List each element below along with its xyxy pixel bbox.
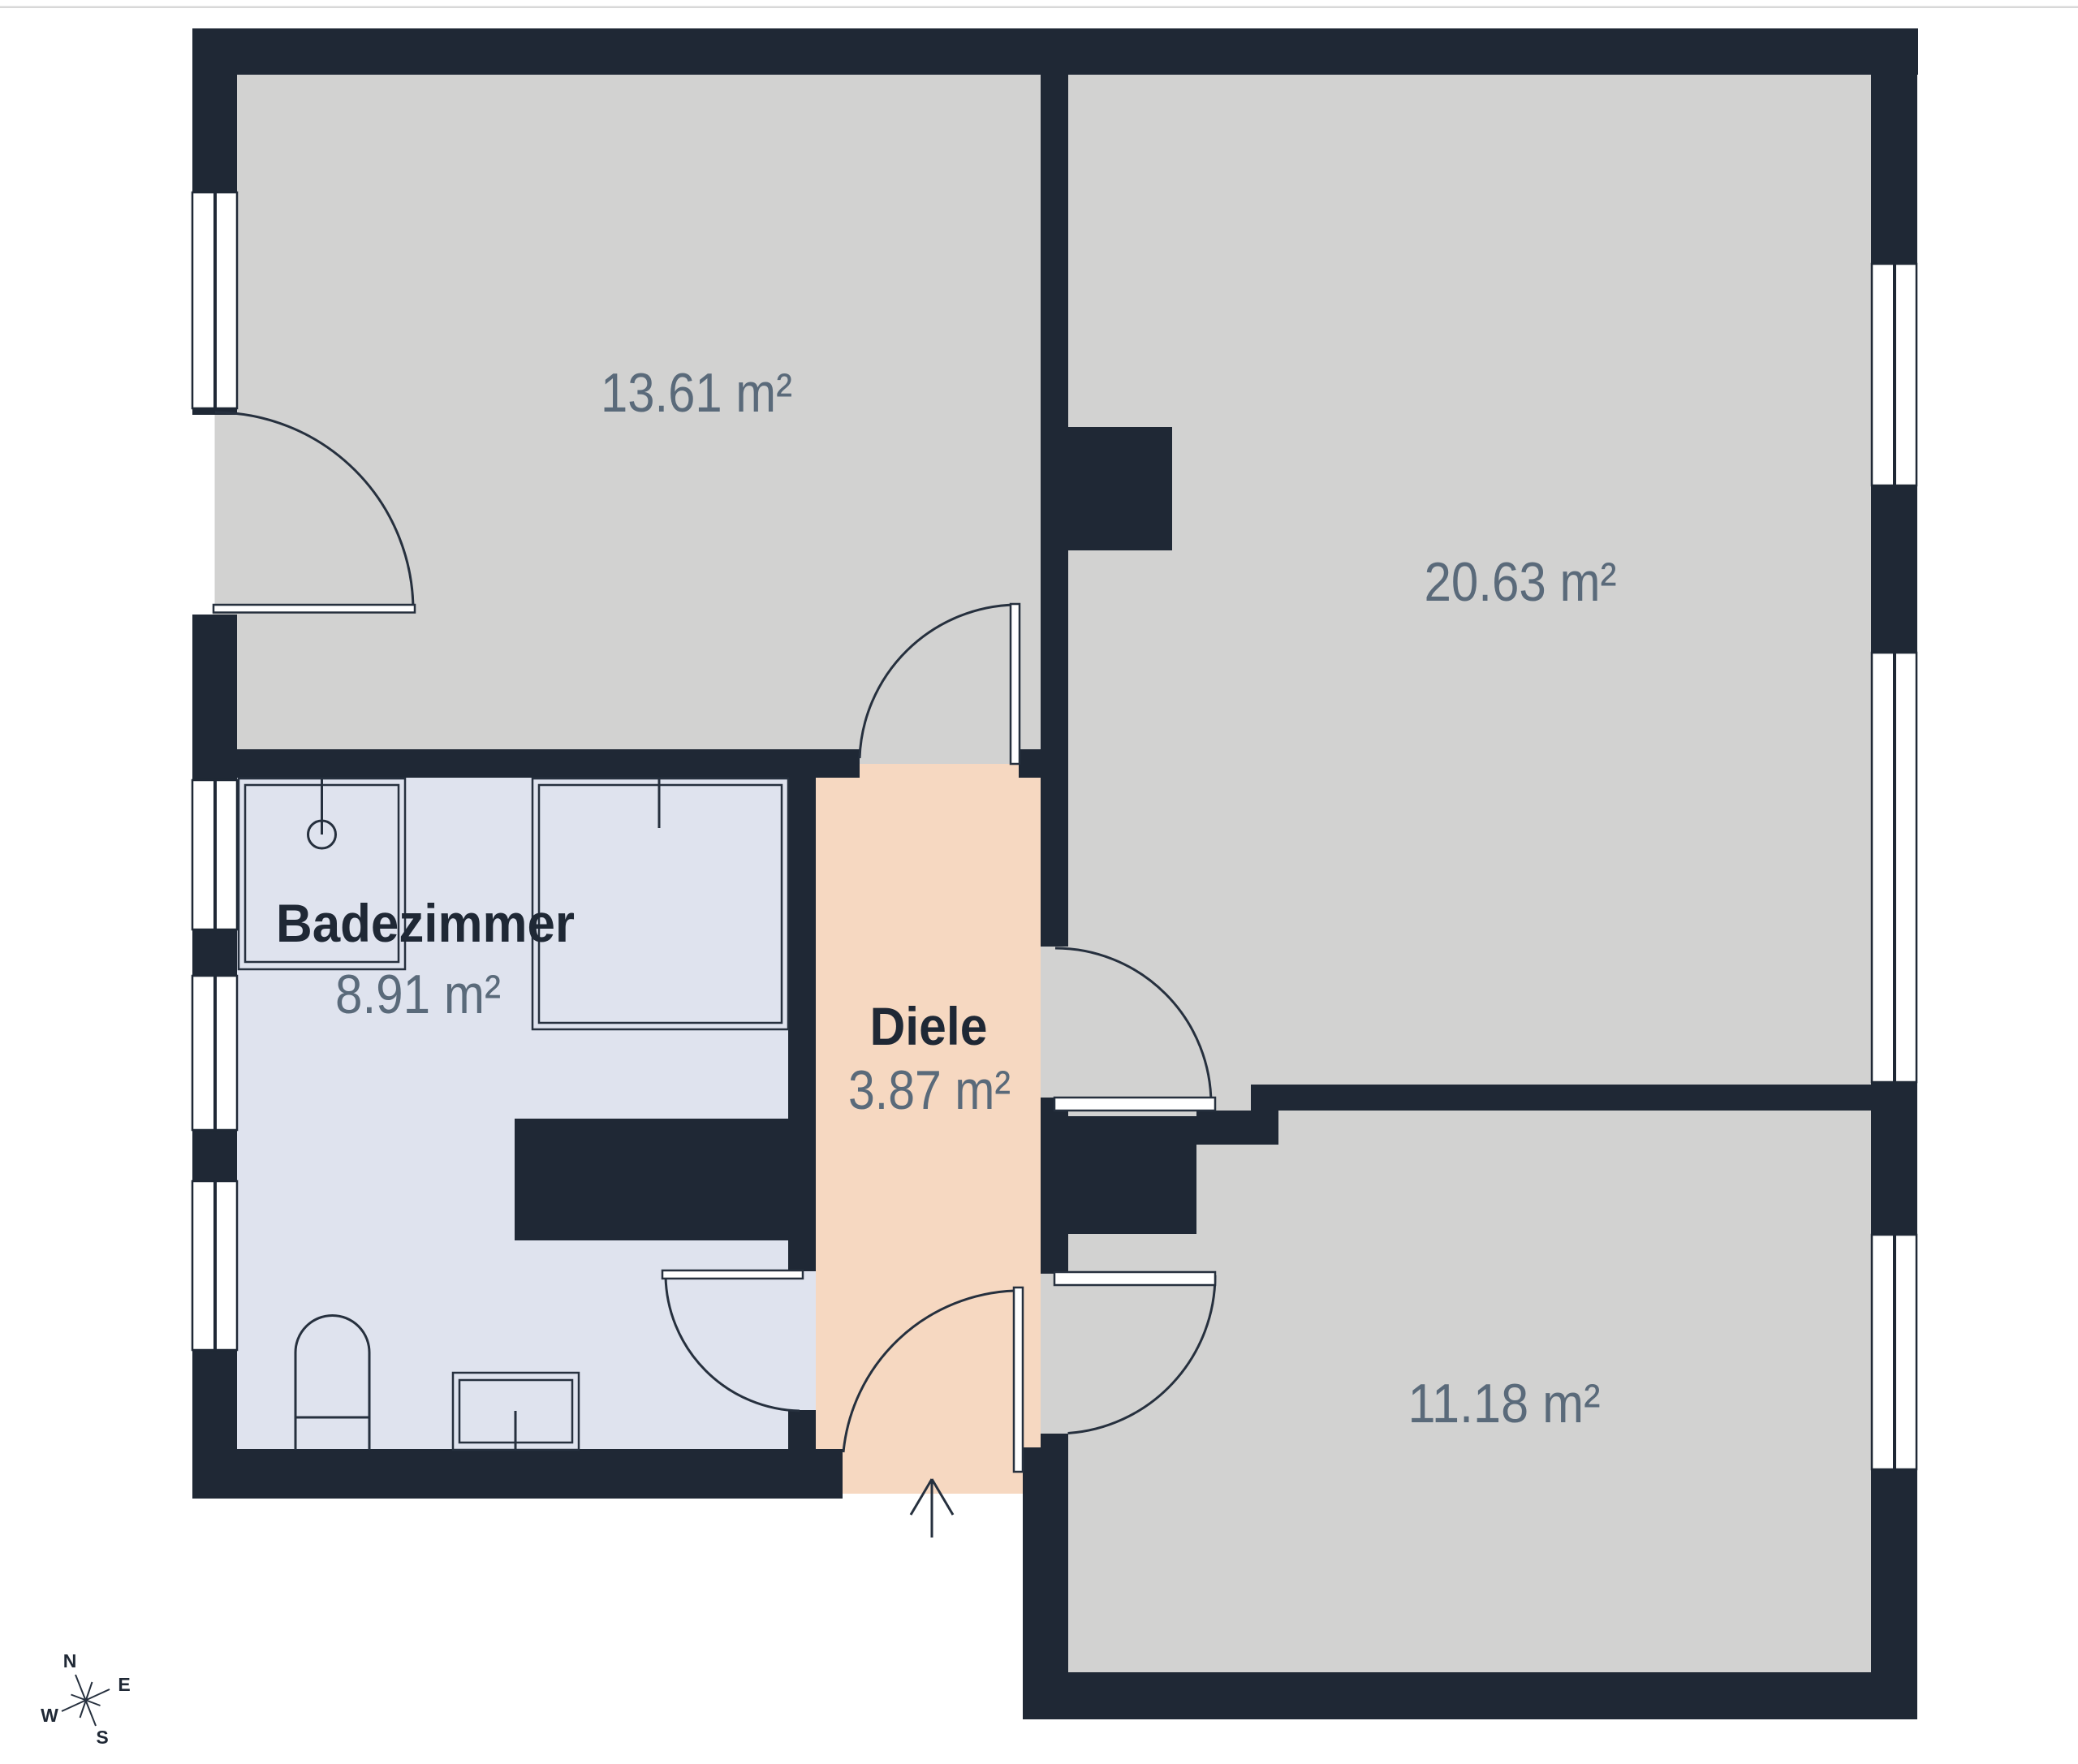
svg-text:13.61 m²: 13.61 m² [601, 362, 792, 424]
svg-text:8.91 m²: 8.91 m² [335, 964, 501, 1025]
svg-text:E: E [118, 1674, 130, 1695]
svg-text:11.18 m²: 11.18 m² [1408, 1373, 1601, 1434]
svg-text:20.63 m²: 20.63 m² [1425, 551, 1617, 613]
svg-text:Diele: Diele [870, 996, 988, 1056]
svg-text:3.87 m²: 3.87 m² [848, 1059, 1011, 1121]
svg-text:Badezimmer: Badezimmer [276, 893, 575, 953]
svg-text:S: S [96, 1727, 108, 1748]
svg-text:N: N [63, 1650, 77, 1671]
svg-text:W: W [41, 1705, 58, 1726]
